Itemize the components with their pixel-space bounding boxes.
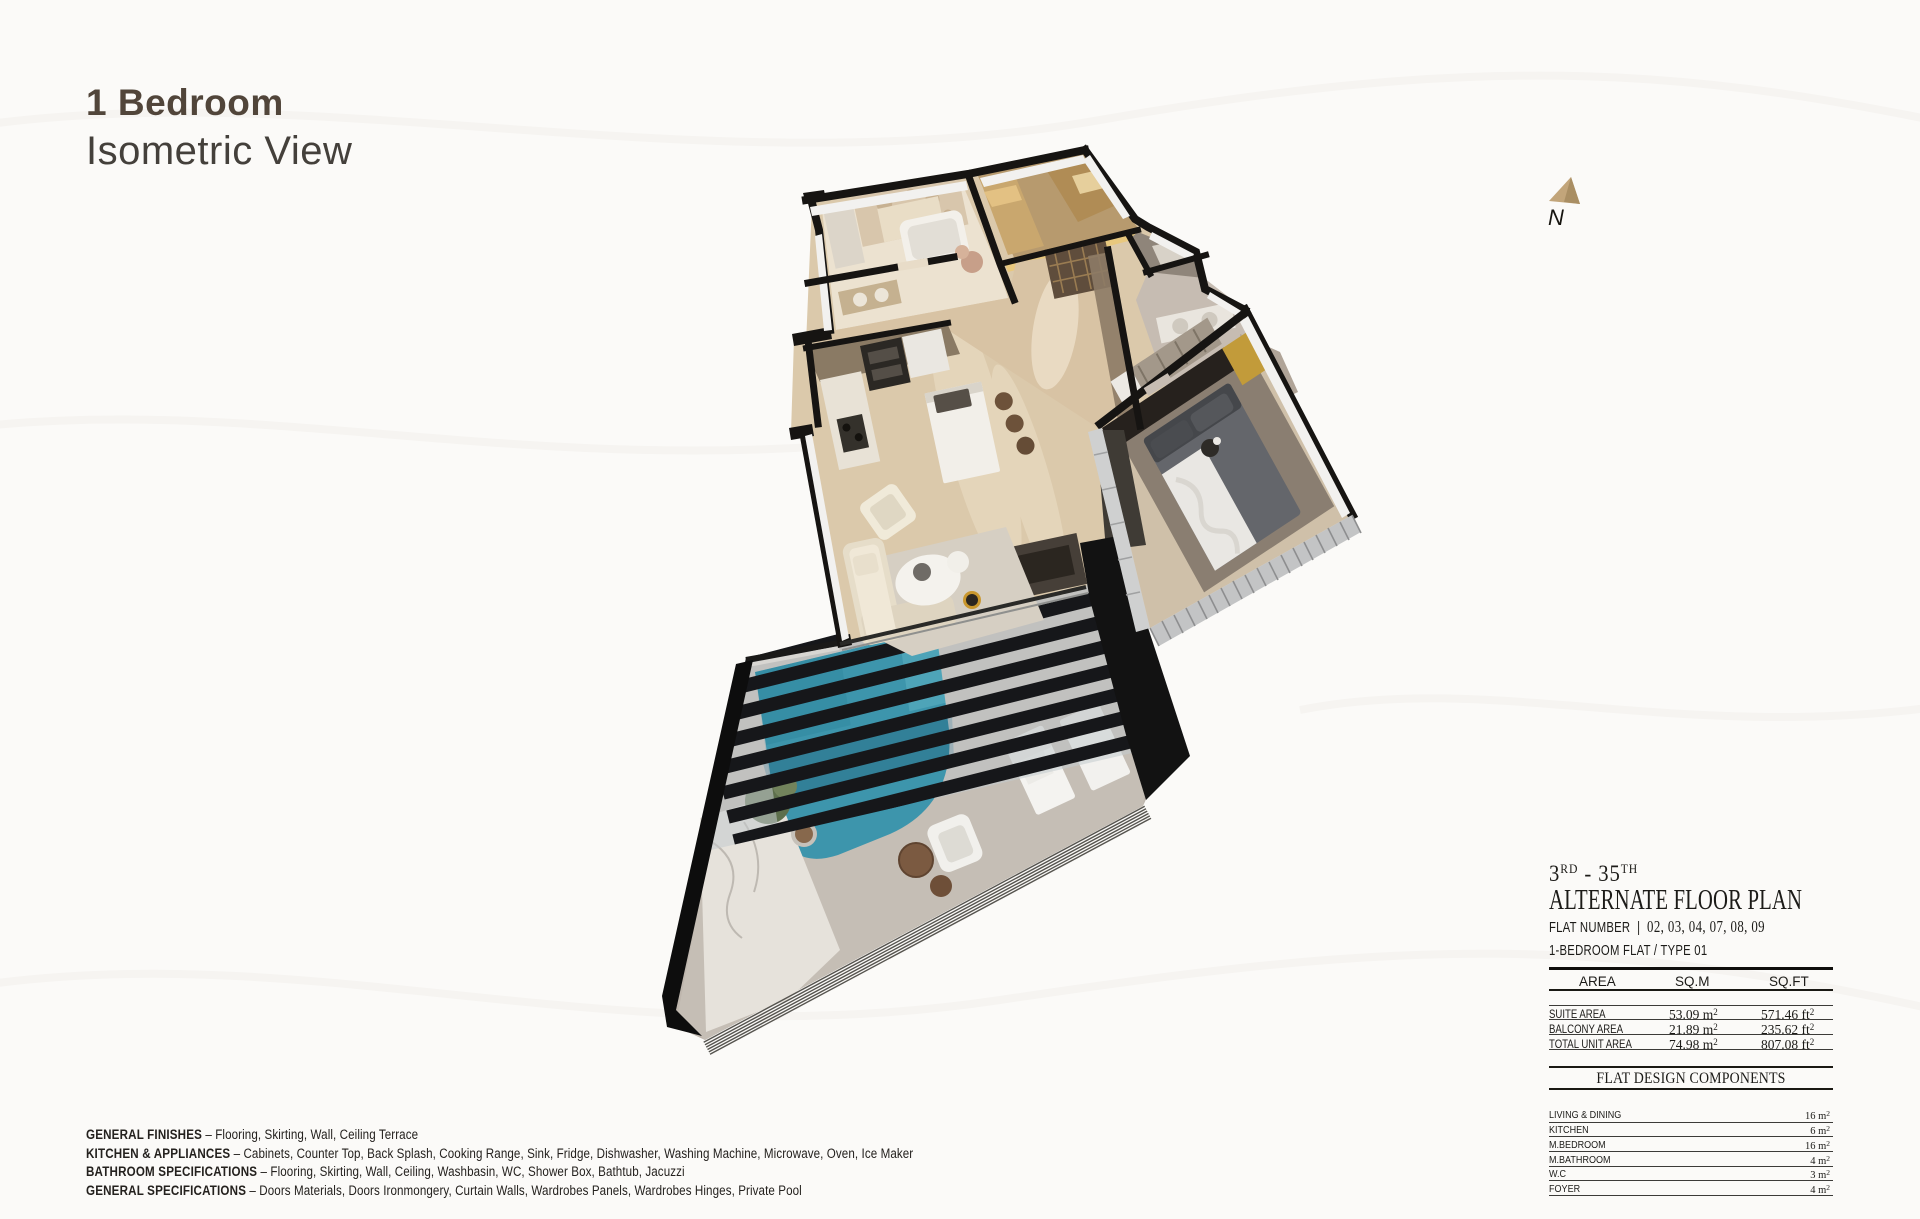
svg-text:N: N [1548,205,1564,230]
